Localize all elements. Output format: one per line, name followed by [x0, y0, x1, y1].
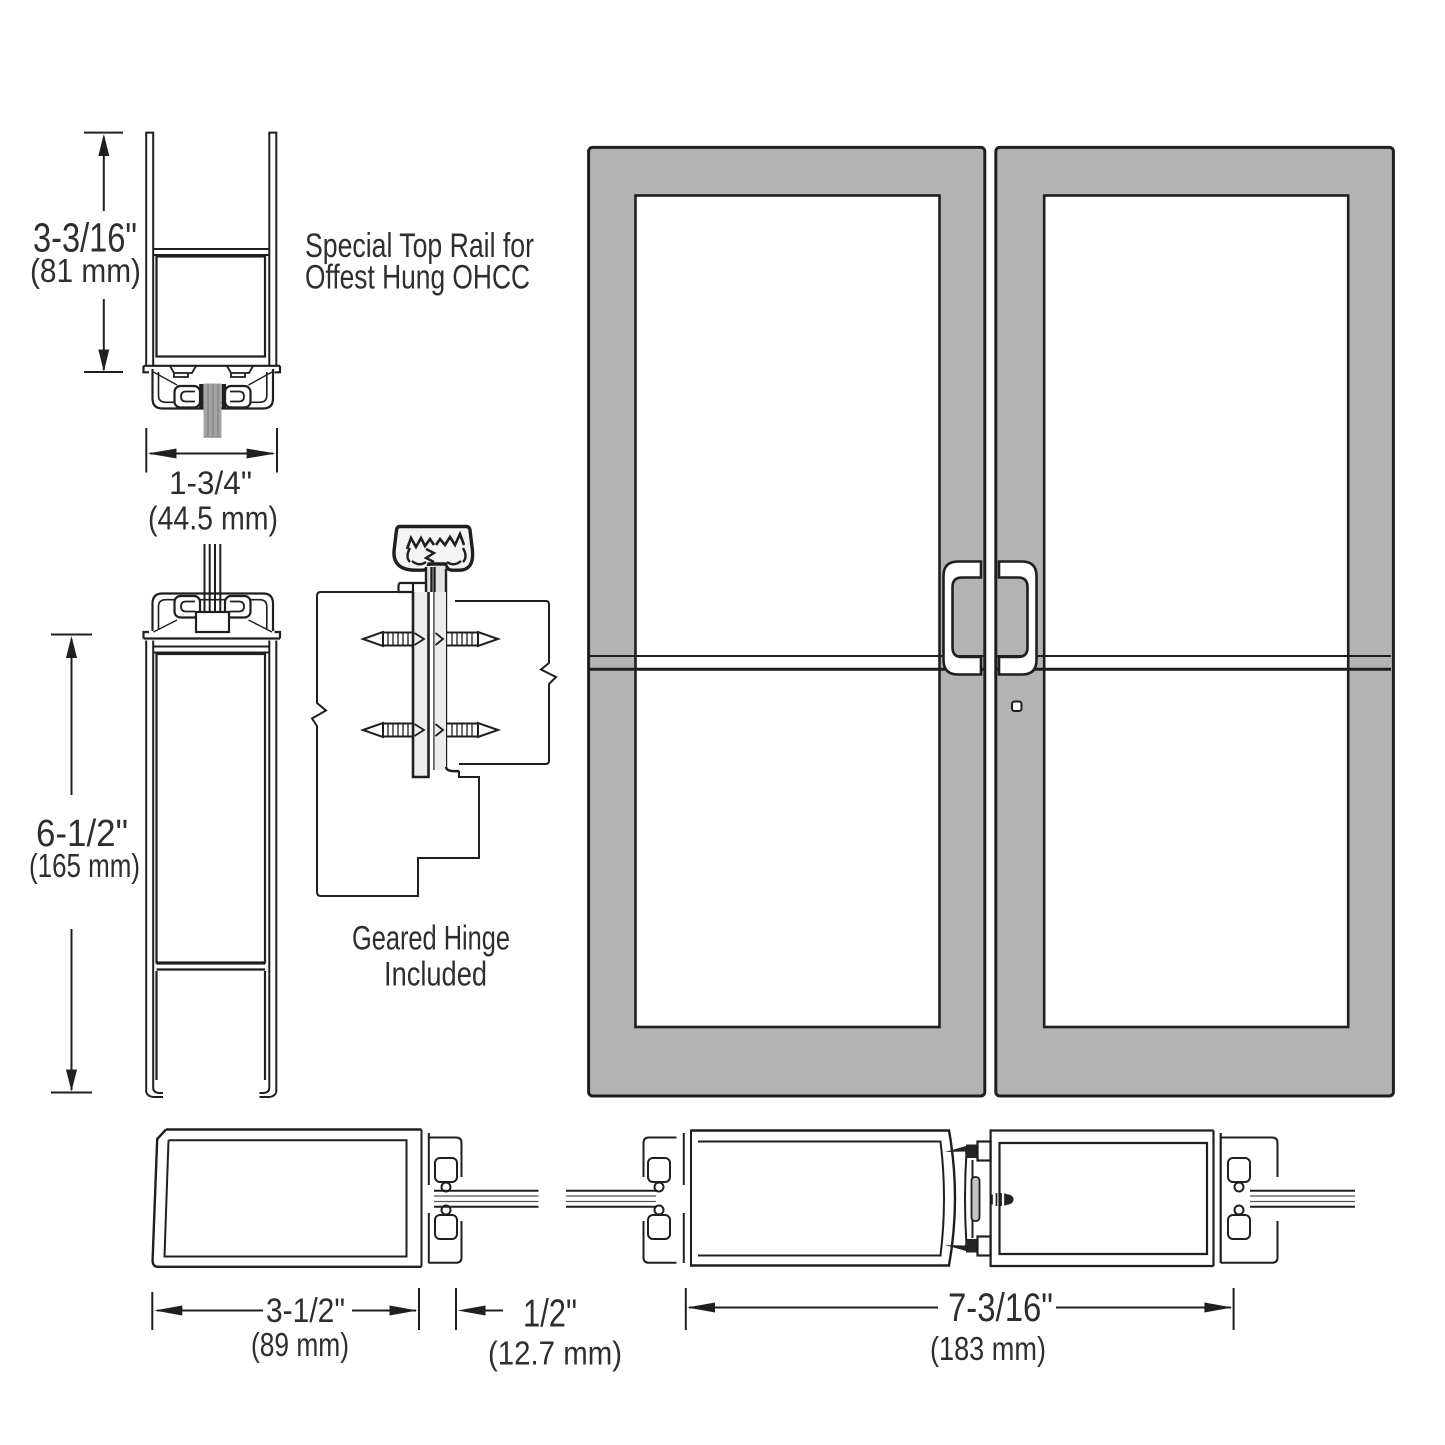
svg-text:3-1/2": 3-1/2" — [266, 1292, 345, 1330]
svg-text:Offest Hung OHCC: Offest Hung OHCC — [305, 259, 530, 297]
svg-text:1/2": 1/2" — [523, 1293, 577, 1336]
svg-text:(183 mm): (183 mm) — [930, 1330, 1046, 1367]
svg-text:Geared Hinge: Geared Hinge — [352, 920, 510, 958]
svg-text:(165 mm): (165 mm) — [29, 847, 140, 884]
svg-text:1-3/4": 1-3/4" — [169, 465, 252, 501]
svg-text:Included: Included — [384, 956, 487, 994]
svg-text:(89 mm): (89 mm) — [251, 1326, 349, 1363]
svg-text:7-3/16": 7-3/16" — [948, 1286, 1053, 1330]
svg-text:(44.5 mm): (44.5 mm) — [148, 500, 278, 537]
svg-text:(81 mm): (81 mm) — [30, 252, 141, 289]
svg-text:(12.7 mm): (12.7 mm) — [488, 1335, 622, 1372]
